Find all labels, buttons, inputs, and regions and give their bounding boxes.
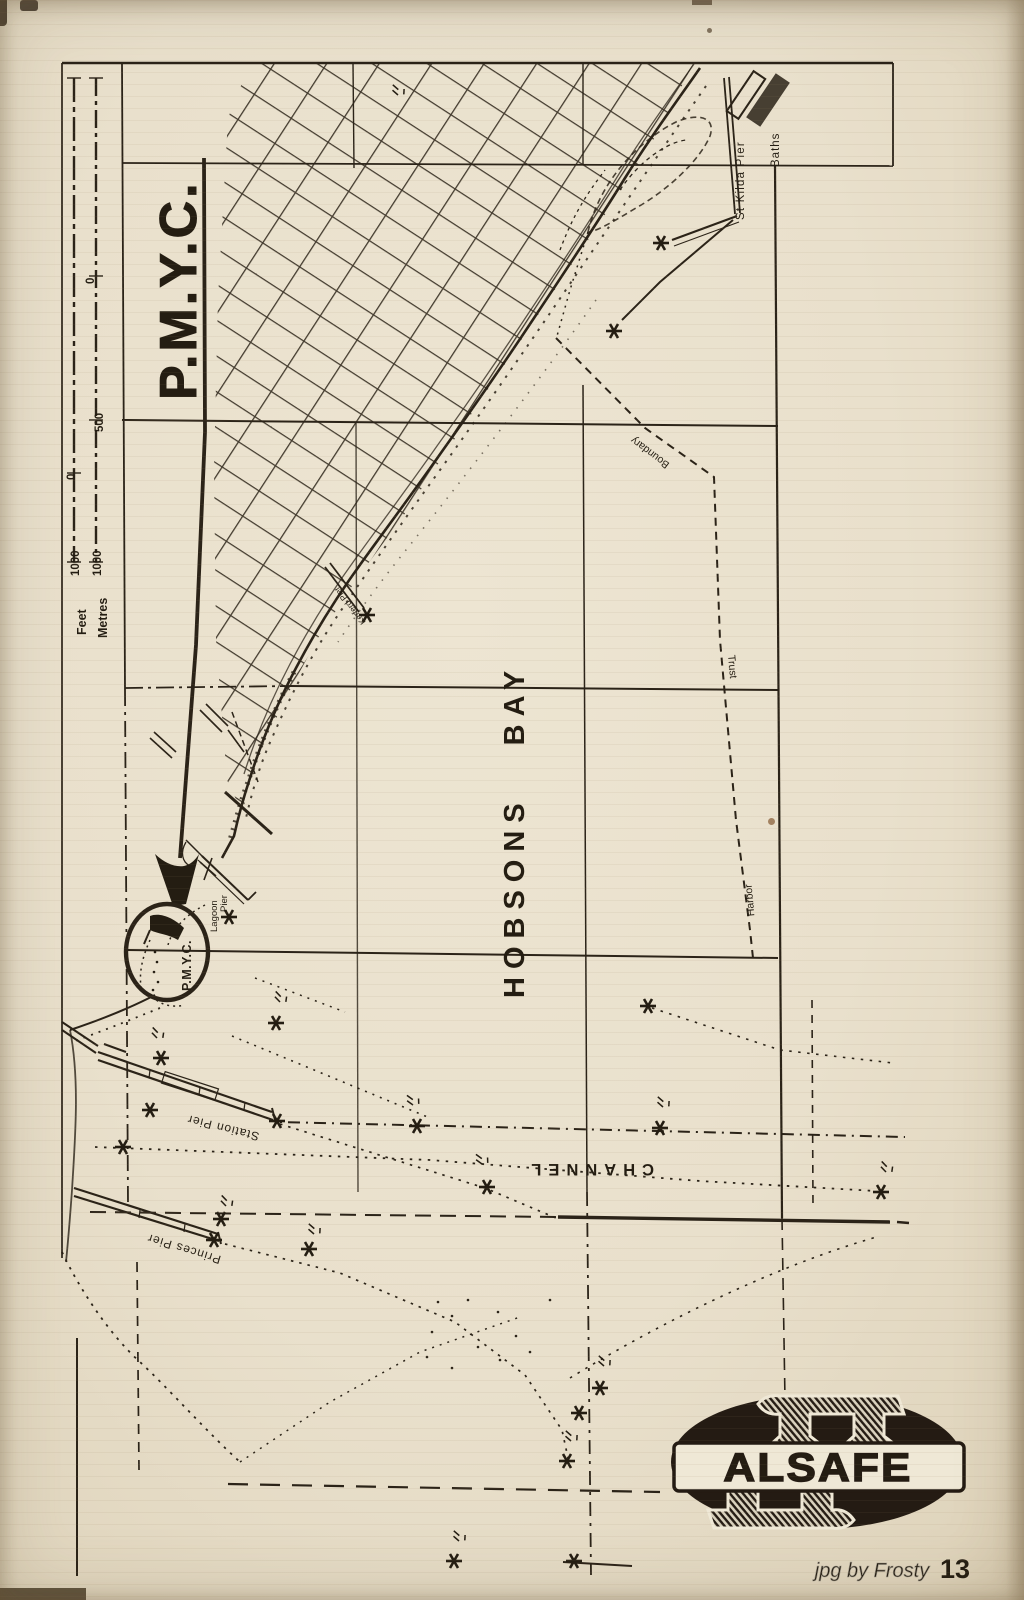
beacon-marker [873,1185,889,1199]
page-number: 13 [940,1554,970,1584]
station-pier-label: Station Pier [185,1112,260,1143]
channel-label: CHANNEL [524,1160,654,1178]
beacon-marker [142,1103,158,1117]
princes-pier [74,1188,221,1244]
shoreline-south [70,995,155,1030]
beacon-marker [571,1406,587,1420]
beacon-label-ticks [306,1223,322,1236]
scale-metres-1000: 1000 [92,550,104,576]
map-figure: P.M.Y.C. [0,0,1024,1600]
beacon-marker [269,1114,285,1128]
shoreline-south [66,1030,76,1262]
scale-feet-1000: 1000 [70,550,82,576]
beacon-label-ticks [596,1355,612,1368]
beacon-marker [592,1381,608,1395]
beacon-marker [559,1454,575,1468]
scale-bar [67,78,103,562]
sounding-dots [426,1299,552,1370]
lagoon-pier-label: Pier [219,895,230,912]
beacon-marker [566,1554,582,1568]
beacon-label-ticks [149,1027,165,1041]
beacon-label-ticks [272,991,288,1005]
beacon-label-ticks [474,1153,490,1165]
map-title: P.M.Y.C. [150,180,208,400]
scale-metres-label: Metres [96,598,110,638]
scale-metres-0: 0 [85,278,97,284]
boundary-label: Boundary [628,434,672,471]
beacon-marker [268,1016,284,1030]
beacon-marker [653,236,669,250]
baths-label: Baths [770,133,782,167]
st-kilda-breakwater-south [622,220,733,320]
logo-text: ALSAFE [723,1445,912,1490]
scale-feet-0: 0 [66,474,78,480]
beacon-label-ticks [218,1195,234,1209]
grid-line [122,63,125,690]
baths [727,71,789,126]
watermark-credit: jpg by Frosty [812,1560,930,1582]
beacon-marker [652,1121,668,1135]
beacon-marker [301,1242,317,1256]
beacon-label-ticks [451,1530,467,1543]
trust-label: Trust [725,654,739,679]
station-pier [98,1044,276,1124]
st-kilda-breakwater [672,216,737,240]
grid-line [782,1218,785,1400]
grid-line [290,686,778,690]
title-and-pointer: P.M.Y.C. [126,158,208,1000]
beacon-marker [115,1140,131,1154]
grid-line [583,385,587,1192]
beacon-marker [409,1119,425,1133]
beacon-label-ticks [878,1161,894,1175]
beacon-marker [640,999,656,1013]
grid-line [812,1000,813,1207]
pmyc-circle-label: P.M.Y.C. [180,940,194,991]
alsafe-logo: ALSAFE [671,1395,964,1529]
grid-line [587,1192,591,1575]
scale-labels: Feet Metres 1000 1000 0 500 0 [66,278,110,638]
beacon-marker [446,1554,462,1568]
beacon-label-ticks [655,1096,671,1109]
beacon-marker [606,324,622,338]
scanned-page: P.M.Y.C. [0,0,1024,1600]
clubhouse-mark [150,915,184,940]
grid-line [775,165,782,1218]
st-kilda-pier-label: St Kilda Pier [735,141,747,220]
scale-metres-500: 500 [94,413,106,432]
clubhouse-mark [144,930,150,944]
hobsons-bay-label: HOBSONS BAY [499,663,531,998]
harbor-label: Harbor [743,883,758,917]
pointer-arrow-head [155,854,199,906]
beacon-label-ticks [405,1094,421,1106]
beacon-marker [153,1051,169,1065]
grid-line [125,950,778,958]
scale-feet-label: Feet [75,608,89,635]
scale-ticks [67,78,103,562]
circle-detail-dots [152,951,160,992]
page-footer: jpg by Frosty 13 [812,1554,970,1584]
st-kilda-pier [724,78,735,214]
